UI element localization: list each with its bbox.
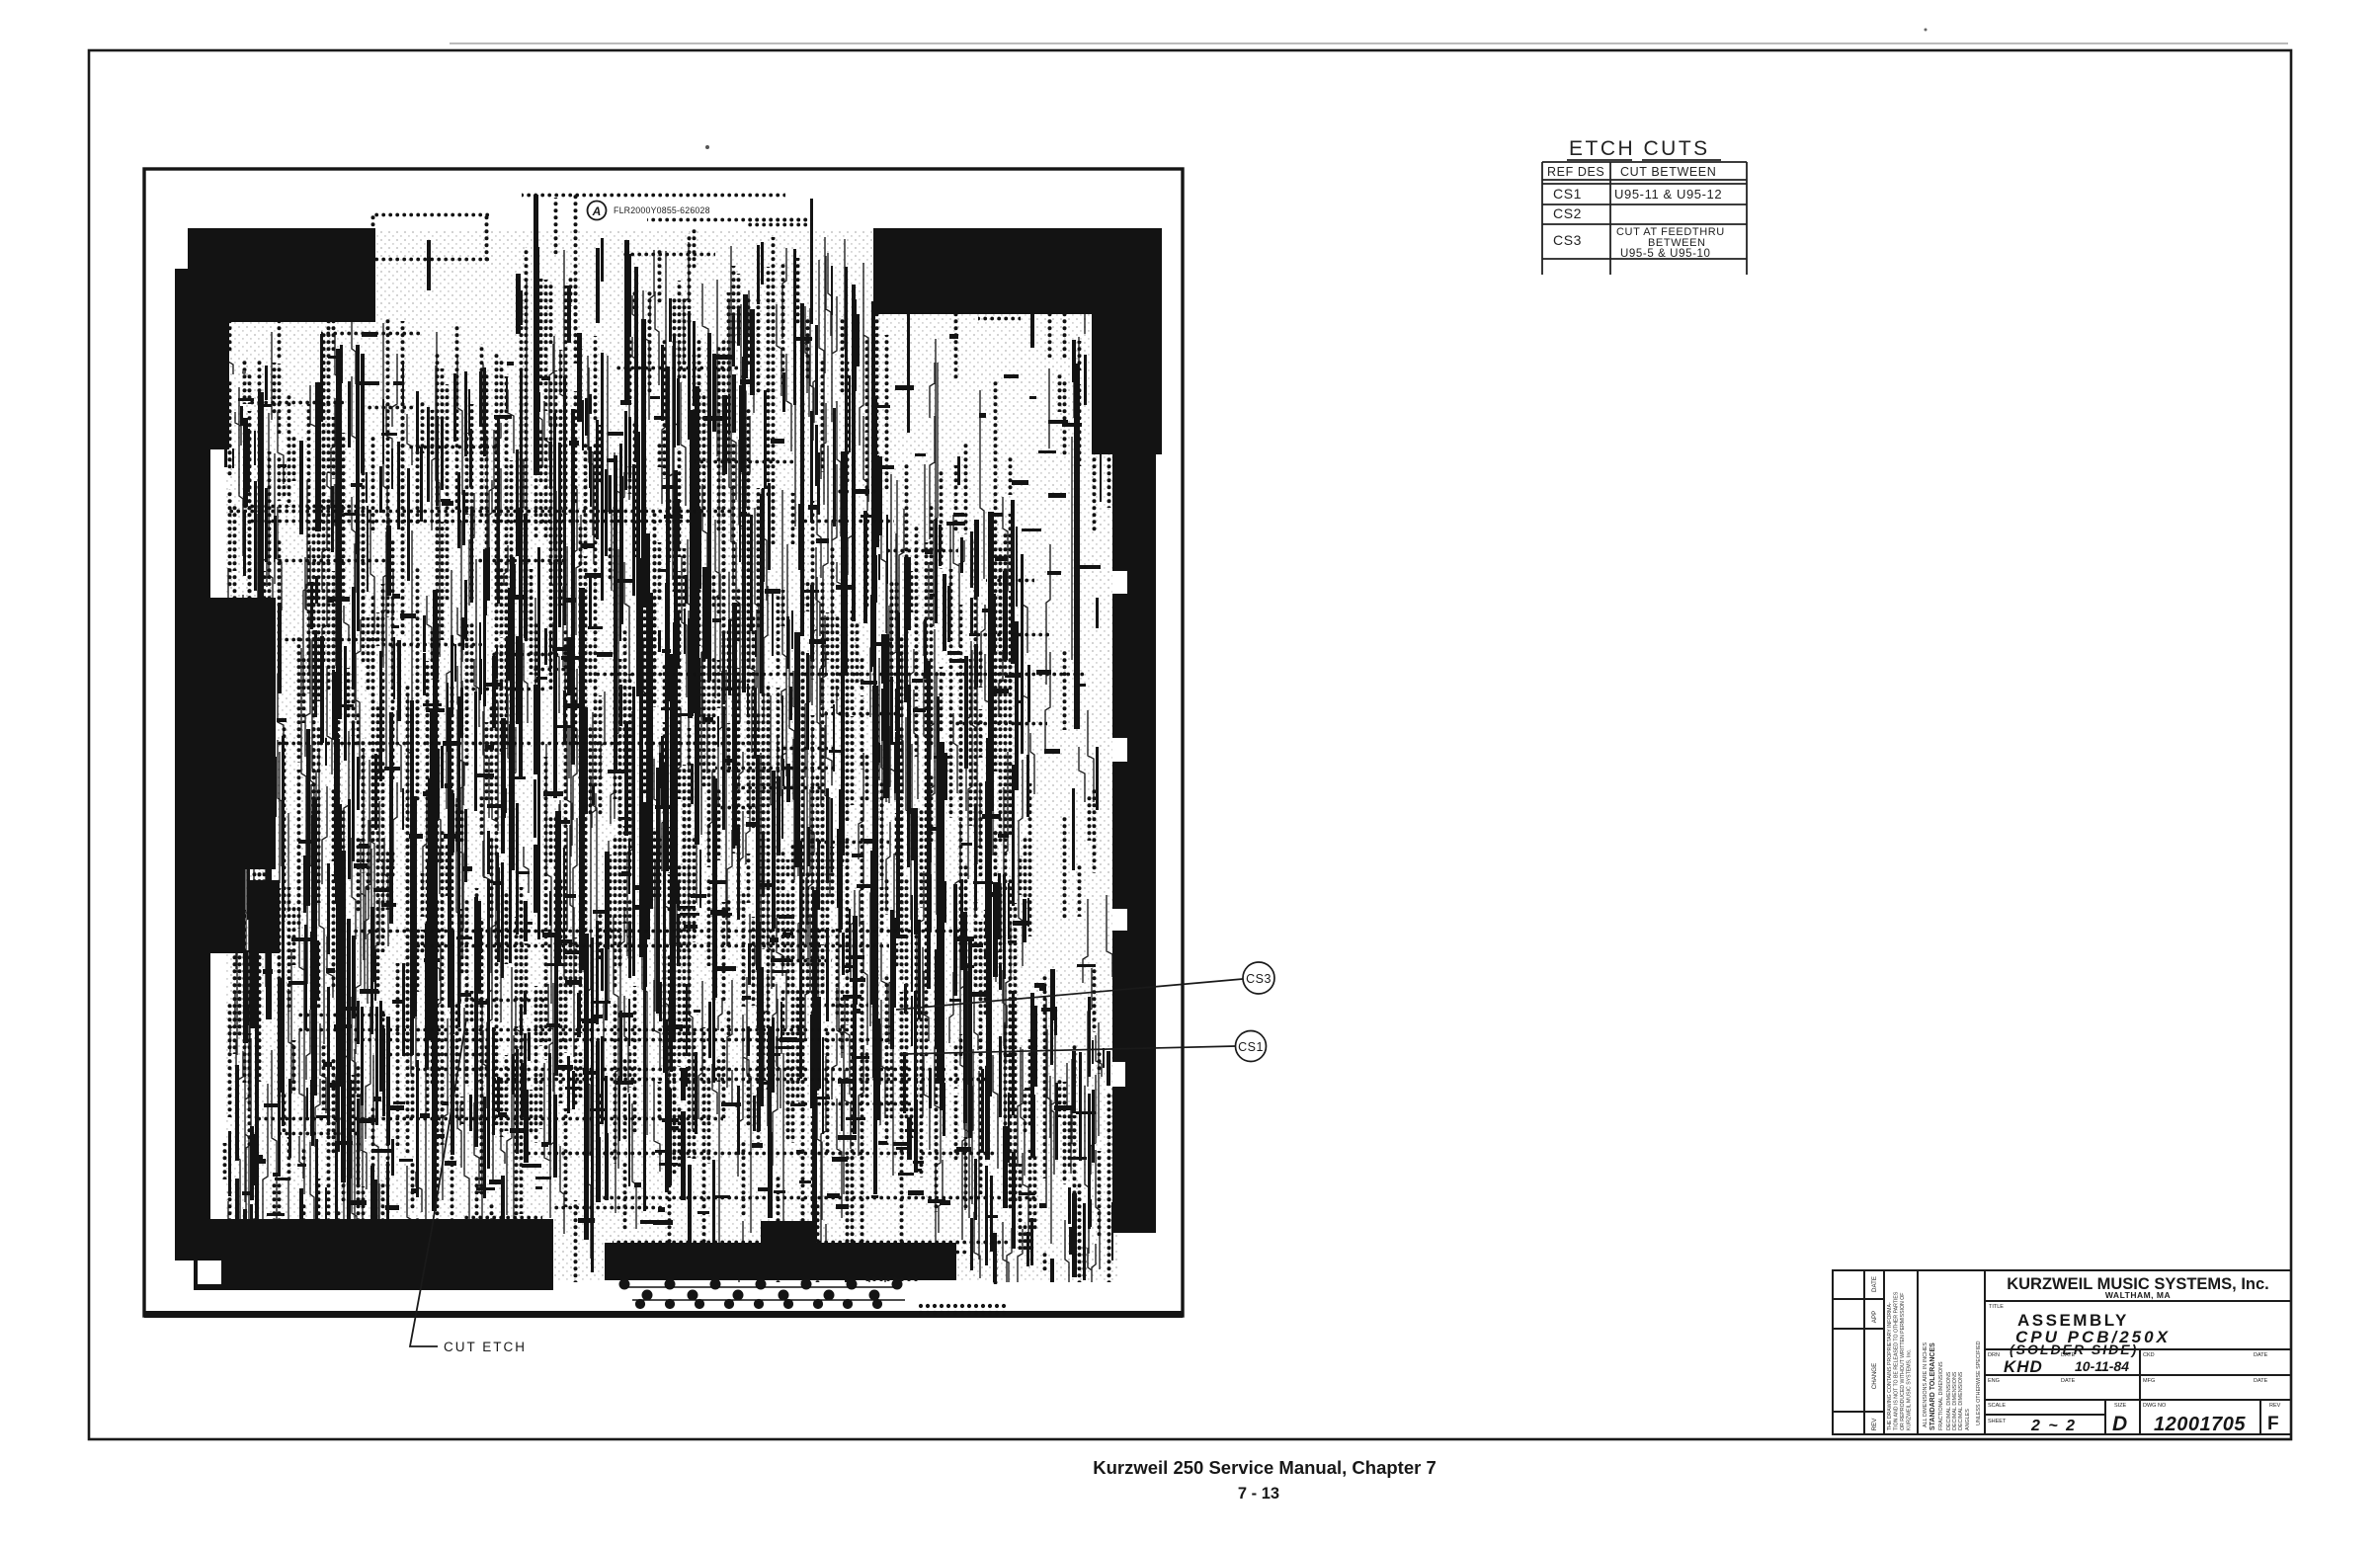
svg-text:STANDARD TOLERANCES: STANDARD TOLERANCES [1929, 1342, 1936, 1430]
svg-text:TITLE: TITLE [1989, 1304, 2004, 1310]
svg-text:CUT BETWEEN: CUT BETWEEN [1620, 165, 1716, 179]
svg-text:10-11-84: 10-11-84 [2075, 1358, 2129, 1374]
svg-text:CKD: CKD [2143, 1352, 2155, 1358]
svg-text:CS3: CS3 [1553, 232, 1582, 248]
svg-text:CHANGE: CHANGE [1871, 1363, 1878, 1389]
svg-text:DWG NO: DWG NO [2143, 1403, 2167, 1409]
svg-text:DATE: DATE [2254, 1378, 2268, 1384]
svg-text:KURZWEIL MUSIC SYSTEMS, Inc.: KURZWEIL MUSIC SYSTEMS, Inc. [1907, 1349, 1913, 1430]
svg-text:CS1: CS1 [1553, 186, 1582, 202]
svg-text:12001705: 12001705 [2154, 1414, 2246, 1435]
svg-text:KHD: KHD [2004, 1357, 2043, 1376]
svg-text:D: D [2112, 1413, 2127, 1435]
svg-text:7 - 13: 7 - 13 [1238, 1485, 1279, 1503]
svg-text:THE DRAWING CONTAINS PROPRIETA: THE DRAWING CONTAINS PROPRIETARY INFORMA… [1887, 1302, 1893, 1430]
svg-text:2 ~ 2: 2 ~ 2 [2030, 1418, 2077, 1434]
svg-text:UNLESS OTHERWISE SPECIFIED: UNLESS OTHERWISE SPECIFIED [1976, 1341, 1982, 1425]
svg-text:CS2: CS2 [1553, 205, 1582, 221]
svg-text:ANGLES: ANGLES [1965, 1409, 1971, 1430]
svg-text:SHEET: SHEET [1988, 1419, 2007, 1424]
svg-text:ALL DIMENSIONS ARE IN INCHES: ALL DIMENSIONS ARE IN INCHES [1923, 1342, 1929, 1427]
svg-text:APP: APP [1871, 1311, 1878, 1323]
svg-text:DATE: DATE [2061, 1352, 2076, 1358]
svg-text:FLR2000Y0855-626028: FLR2000Y0855-626028 [614, 205, 710, 215]
svg-text:DRN: DRN [1988, 1352, 2000, 1358]
svg-text:WALTHAM, MA: WALTHAM, MA [2105, 1290, 2171, 1300]
svg-text:DECIMAL DIMENSIONS: DECIMAL DIMENSIONS [1958, 1371, 1964, 1430]
svg-text:TION AND IS NOT TO BE RELEASED: TION AND IS NOT TO BE RELEASED TO OTHER … [1894, 1291, 1900, 1430]
svg-text:FRACTIONAL DIMENSIONS: FRACTIONAL DIMENSIONS [1938, 1361, 1944, 1430]
svg-text:ENG: ENG [1988, 1378, 2000, 1384]
svg-text:REF DES: REF DES [1547, 165, 1604, 179]
svg-text:DATE: DATE [2254, 1352, 2268, 1358]
svg-text:CUT ETCH: CUT ETCH [444, 1340, 527, 1354]
svg-text:SCALE: SCALE [1988, 1403, 2006, 1409]
svg-text:REV: REV [2269, 1403, 2281, 1409]
svg-text:CS3: CS3 [1246, 972, 1272, 986]
svg-text:MFG: MFG [2143, 1378, 2155, 1384]
svg-text:U95-11 & U95-12: U95-11 & U95-12 [1614, 187, 1722, 202]
svg-text:OR REPRODUCED WITHOUT WRITTEN: OR REPRODUCED WITHOUT WRITTEN PERMISSION… [1900, 1293, 1906, 1430]
svg-text:F: F [2267, 1414, 2279, 1434]
svg-text:ETCH CUTS: ETCH CUTS [1569, 137, 1710, 160]
svg-text:U95-5 & U95-10: U95-5 & U95-10 [1620, 248, 1711, 260]
svg-text:A: A [592, 204, 602, 218]
svg-text:SIZE: SIZE [2114, 1403, 2127, 1409]
svg-text:Kurzweil 250 Service Manual, C: Kurzweil 250 Service Manual, Chapter 7 [1093, 1457, 1436, 1478]
svg-text:CS1: CS1 [1238, 1040, 1264, 1054]
svg-text:DATE: DATE [2061, 1378, 2076, 1384]
svg-text:DATE: DATE [1871, 1276, 1878, 1292]
svg-text:REV: REV [1871, 1418, 1878, 1431]
